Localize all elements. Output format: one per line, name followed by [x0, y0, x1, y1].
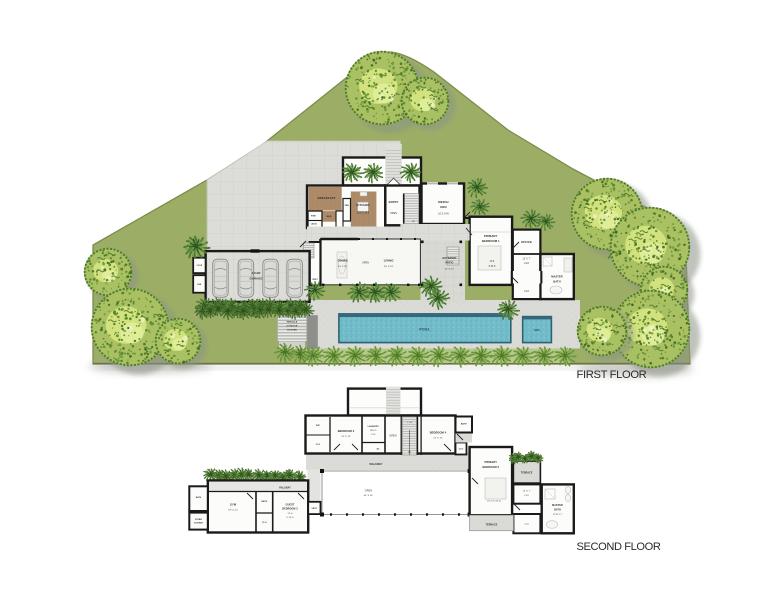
svg-text:CLO: CLO — [524, 524, 529, 526]
svg-text:12’6X 17’: 12’6X 17’ — [553, 514, 563, 516]
svg-text:VEST: VEST — [312, 279, 318, 281]
svg-text:20’8 X 20’8: 20’8 X 20’8 — [357, 213, 370, 215]
svg-text:18’-6 X 24’-6: 18’-6 X 24’-6 — [487, 501, 501, 503]
svg-text:MASTER: MASTER — [551, 275, 563, 279]
svg-text:X 21’6: X 21’6 — [488, 266, 496, 268]
svg-text:3-CAR: 3-CAR — [251, 271, 260, 275]
svg-text:BEDROOM 3: BEDROOM 3 — [338, 429, 355, 433]
svg-text:CAB.: CAB. — [197, 283, 202, 286]
svg-text:14’ X 13’: 14’ X 13’ — [433, 438, 443, 440]
svg-text:CLO: CLO — [524, 263, 529, 265]
svg-text:OPEN: OPEN — [389, 435, 396, 438]
svg-text:TERRACE: TERRACE — [521, 472, 533, 475]
svg-text:14’ X 13’: 14’ X 13’ — [341, 436, 351, 438]
svg-text:26’ X 18’: 26’ X 18’ — [384, 266, 394, 268]
svg-text:BEDROOM 2: BEDROOM 2 — [482, 465, 499, 469]
svg-text:GUEST: GUEST — [286, 504, 295, 507]
svg-text:PERGOLA: PERGOLA — [287, 321, 298, 324]
svg-text:10 X 14’6: 10 X 14’6 — [438, 214, 449, 216]
svg-text:OFFICE: OFFICE — [521, 240, 532, 244]
svg-text:CLO: CLO — [459, 449, 464, 451]
svg-text:12’ X 7’: 12’ X 7’ — [523, 491, 531, 493]
svg-text:WALKWAY: WALKWAY — [370, 463, 383, 466]
svg-text:ENTRY: ENTRY — [389, 200, 399, 204]
svg-text:CLO: CLO — [524, 495, 529, 497]
svg-text:PATIO: PATIO — [445, 261, 453, 265]
svg-text:MEDIA/: MEDIA/ — [438, 200, 449, 204]
svg-text:POOL: POOL — [419, 327, 430, 331]
svg-text:W16.5: W16.5 — [370, 430, 377, 432]
svg-text:OPEN: OPEN — [390, 213, 397, 215]
svg-text:12’ X 12’: 12’ X 12’ — [445, 269, 455, 271]
svg-text:BEDROOM 1: BEDROOM 1 — [482, 239, 500, 243]
svg-text:LAUN.: LAUN. — [311, 223, 318, 226]
svg-text:VEST: VEST — [311, 508, 317, 510]
svg-text:SPA: SPA — [534, 328, 540, 332]
svg-text:FIRST FLOOR: FIRST FLOOR — [577, 369, 647, 381]
svg-text:12’-6: 12’-6 — [287, 513, 293, 515]
svg-text:MASTER: MASTER — [552, 504, 563, 507]
svg-text:7’-10: 7’-10 — [407, 422, 413, 424]
svg-text:BATH: BATH — [196, 496, 202, 499]
svg-text:BATH: BATH — [553, 280, 560, 284]
svg-text:TERRACE: TERRACE — [486, 523, 498, 526]
svg-text:BATH: BATH — [261, 500, 267, 503]
svg-text:UP 4’-10: UP 4’-10 — [228, 510, 238, 512]
svg-text:BBQ: BBQ — [327, 216, 332, 218]
svg-text:LIVING: LIVING — [384, 259, 394, 263]
svg-text:40’ X 18’: 40’ X 18’ — [364, 495, 374, 497]
svg-text:12’6: 12’6 — [490, 261, 495, 263]
svg-text:12 X 7’: 12 X 7’ — [523, 259, 531, 261]
svg-text:AC: AC — [376, 448, 380, 451]
svg-text:BREAKFAST: BREAKFAST — [318, 196, 336, 200]
svg-text:PRIMARY: PRIMARY — [484, 234, 498, 238]
svg-text:BATH: BATH — [554, 509, 561, 512]
svg-text:PWD: PWD — [311, 216, 316, 218]
svg-text:16’ X 18’: 16’ X 18’ — [338, 266, 348, 268]
svg-text:CLO: CLO — [316, 444, 321, 446]
svg-text:DINING: DINING — [338, 259, 348, 263]
svg-text:EXTERIOR: EXTERIOR — [442, 256, 456, 260]
svg-text:PRIMARY: PRIMARY — [485, 460, 498, 464]
svg-text:OUTDOOR: OUTDOOR — [287, 326, 298, 328]
svg-text:KITCHEN: KITCHEN — [356, 203, 369, 207]
svg-text:BATH: BATH — [461, 423, 467, 426]
svg-text:BEDROOM 4: BEDROOM 4 — [430, 431, 447, 435]
svg-text:CLO: CLO — [262, 522, 267, 524]
svg-text:DEN: DEN — [440, 205, 446, 209]
svg-text:BEDROOM 3: BEDROOM 3 — [282, 508, 298, 511]
svg-text:OPEN: OPEN — [365, 490, 372, 493]
svg-text:LAUNDRY: LAUNDRY — [368, 425, 380, 428]
svg-text:SECOND FLOOR: SECOND FLOOR — [577, 541, 661, 553]
svg-text:COOK: COOK — [197, 265, 203, 267]
svg-text:UP: UP — [412, 221, 416, 223]
svg-text:HALLWAY: HALLWAY — [279, 486, 291, 489]
svg-text:GYM: GYM — [230, 503, 236, 507]
svg-text:KITCHEN: KITCHEN — [287, 330, 297, 332]
svg-text:GARAGE: GARAGE — [250, 277, 263, 281]
svg-text:STEAM: STEAM — [195, 518, 202, 521]
svg-text:CLO: CLO — [524, 291, 529, 293]
svg-text:OPEN: OPEN — [362, 263, 369, 265]
svg-text:PAN: PAN — [345, 204, 350, 207]
svg-text:X 13’-6: X 13’-6 — [286, 517, 294, 519]
svg-text:DN: DN — [408, 452, 412, 454]
svg-text:WIC: WIC — [316, 425, 321, 427]
svg-text:SHOWER: SHOWER — [194, 523, 203, 525]
